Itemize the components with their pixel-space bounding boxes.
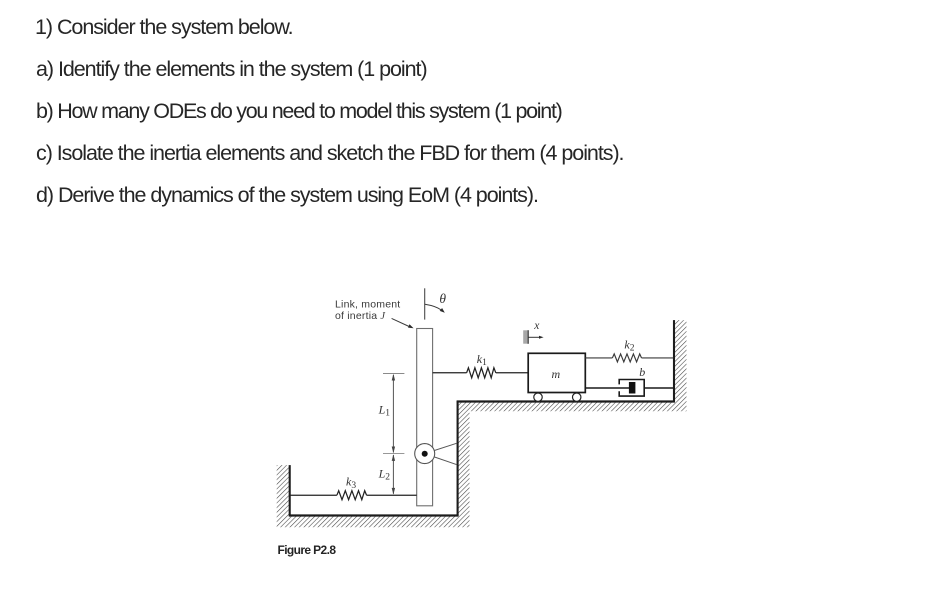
svg-text:m: m bbox=[552, 367, 561, 381]
svg-text:of inertia J: of inertia J bbox=[335, 310, 386, 322]
svg-text:x: x bbox=[533, 320, 540, 332]
svg-text:k2: k2 bbox=[624, 337, 634, 353]
svg-text:Link, moment: Link, moment bbox=[335, 299, 400, 311]
svg-text:k1: k1 bbox=[477, 352, 487, 368]
svg-text:L1: L1 bbox=[378, 402, 391, 418]
svg-text:b: b bbox=[639, 365, 645, 379]
svg-text:k3: k3 bbox=[346, 475, 356, 491]
svg-text:Figure P2.8: Figure P2.8 bbox=[278, 543, 337, 557]
svg-text:L2: L2 bbox=[378, 466, 391, 482]
svg-text:θ: θ bbox=[439, 291, 446, 306]
